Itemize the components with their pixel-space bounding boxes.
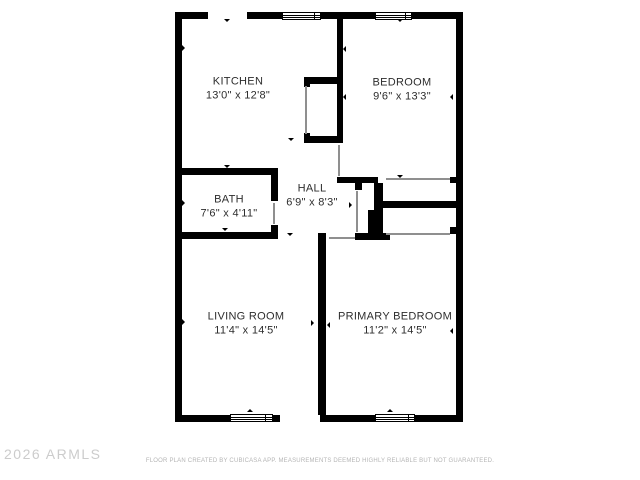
room-label-hall: HALL 6'9" x 8'3": [286, 183, 337, 210]
room-label-kitchen: KITCHEN 13'0" x 12'8": [206, 76, 270, 103]
room-name: PRIMARY BEDROOM: [338, 311, 452, 325]
exterior-wall-right: [456, 12, 463, 422]
room-dimensions: 11'2" x 14'5": [338, 324, 452, 338]
exterior-wall-top-segment: [175, 12, 208, 19]
room-name: KITCHEN: [206, 76, 270, 90]
tick-mark: [387, 409, 393, 412]
tick-mark: [287, 233, 293, 236]
tick-mark: [182, 319, 185, 325]
floorplan-canvas: KITCHEN 13'0" x 12'8" BEDROOM 9'6" x 13'…: [0, 0, 640, 480]
primary-bedroom-door: [329, 237, 355, 239]
closet-divider-wall: [383, 201, 463, 208]
room-label-living-room: LIVING ROOM 11'4" x 14'5": [208, 311, 285, 338]
tick-mark: [397, 175, 403, 178]
room-label-primary-bedroom: PRIMARY BEDROOM 11'2" x 14'5": [338, 311, 452, 338]
armls-watermark: 2026 ARMLS: [4, 446, 102, 462]
primary-closet-slider: [386, 233, 450, 235]
bedroom-door: [338, 145, 340, 176]
living-room-window: [230, 414, 273, 422]
wall-segment: [450, 177, 456, 183]
exterior-wall-bottom-segment: [320, 415, 375, 422]
bedroom-window: [375, 12, 412, 20]
tick-mark: [343, 94, 346, 100]
tick-mark: [397, 19, 403, 22]
room-dimensions: 13'0" x 12'8": [206, 89, 270, 103]
pantry-wall: [304, 133, 310, 143]
wall-segment: [355, 183, 362, 190]
tick-mark: [222, 228, 228, 231]
room-dimensions: 11'4" x 14'5": [208, 324, 285, 338]
bath-east-wall: [271, 225, 278, 232]
room-name: LIVING ROOM: [208, 311, 285, 325]
tick-mark: [182, 45, 185, 51]
bedroom-closet-slider: [386, 178, 450, 180]
room-name: HALL: [286, 183, 337, 197]
bath-south-wall: [175, 232, 278, 239]
tick-mark: [224, 19, 230, 22]
bath-north-wall: [182, 168, 278, 175]
room-dimensions: 6'9" x 8'3": [286, 196, 337, 210]
hall-closet-wall: [374, 183, 383, 210]
wall-segment: [450, 227, 456, 234]
room-label-bedroom: BEDROOM 9'6" x 13'3": [373, 77, 432, 104]
tick-mark: [349, 202, 352, 208]
kitchen-window: [282, 12, 321, 20]
tick-mark: [450, 94, 453, 100]
primary-bedroom-north-wall: [355, 233, 390, 240]
tick-mark: [327, 322, 330, 328]
tick-mark: [247, 409, 253, 412]
room-dimensions: 7'6" x 4'11": [201, 207, 258, 221]
exterior-wall-top-segment: [412, 12, 463, 19]
hall-closet-door: [356, 191, 358, 232]
tick-mark: [311, 320, 314, 326]
exterior-wall-bottom-segment: [415, 415, 463, 422]
tick-mark: [343, 46, 346, 52]
tick-mark: [288, 138, 294, 141]
pantry-door: [305, 86, 307, 134]
bath-door: [273, 203, 275, 224]
room-label-bath: BATH 7'6" x 4'11": [201, 194, 258, 221]
bath-east-wall: [271, 175, 278, 201]
exterior-wall-top-segment: [321, 12, 375, 19]
room-dimensions: 9'6" x 13'3": [373, 90, 432, 104]
exterior-wall-bottom-segment: [175, 415, 230, 422]
living-primary-divider-wall: [318, 233, 326, 415]
room-name: BATH: [201, 194, 258, 208]
tick-mark: [224, 165, 230, 168]
exterior-wall-top-segment: [247, 12, 282, 19]
exterior-wall-left: [175, 12, 182, 422]
exterior-wall-bottom-segment: [273, 415, 280, 422]
disclaimer-text: FLOOR PLAN CREATED BY CUBICASA APP. MEAS…: [146, 458, 494, 464]
room-name: BEDROOM: [373, 77, 432, 91]
floorplan-page: { "page": { "type": "floor-plan", "color…: [0, 0, 640, 480]
tick-mark: [182, 200, 185, 206]
primary-bedroom-window: [375, 414, 415, 422]
